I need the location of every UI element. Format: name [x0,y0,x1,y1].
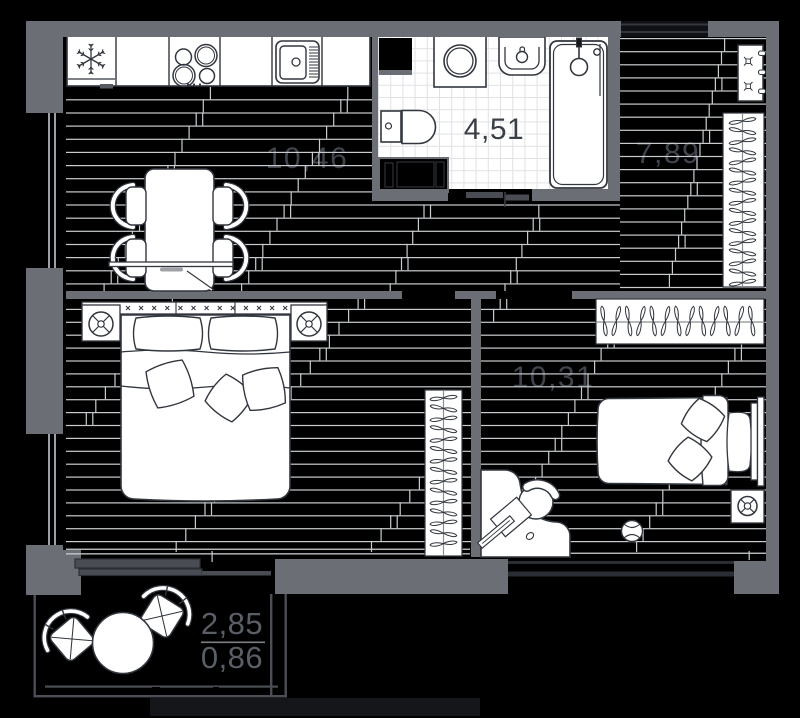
svg-text:2,85: 2,85 [201,606,263,641]
svg-text:4,51: 4,51 [464,113,524,146]
svg-text:0,86: 0,86 [201,640,263,675]
svg-text:10,46: 10,46 [266,142,349,175]
svg-text:7,89: 7,89 [636,137,700,170]
